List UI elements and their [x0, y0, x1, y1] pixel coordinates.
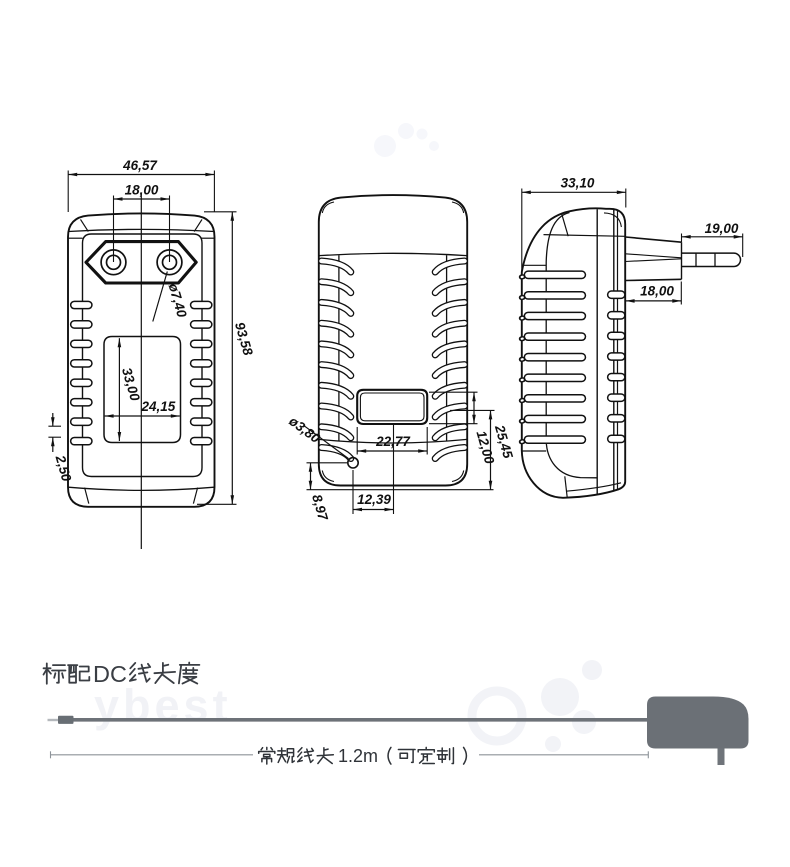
svg-text:18,00: 18,00 — [125, 183, 159, 198]
svg-text:24,15: 24,15 — [141, 399, 176, 414]
svg-text:12,00: 12,00 — [473, 429, 497, 466]
svg-text:1.2m: 1.2m — [338, 746, 378, 766]
svg-text:46,57: 46,57 — [122, 158, 158, 173]
svg-text:12,39: 12,39 — [357, 492, 391, 507]
svg-text:DC: DC — [93, 661, 127, 687]
svg-text:ø7,40: ø7,40 — [166, 282, 190, 320]
svg-text:33,10: 33,10 — [561, 175, 595, 190]
svg-text:18,00: 18,00 — [640, 283, 674, 298]
svg-text:2,50: 2,50 — [52, 453, 74, 484]
svg-text:19,00: 19,00 — [705, 221, 739, 236]
svg-text:8,97: 8,97 — [309, 493, 331, 524]
svg-text:33,00: 33,00 — [119, 366, 143, 403]
svg-text:ybest: ybest — [94, 680, 232, 731]
svg-text:93,58: 93,58 — [232, 320, 256, 357]
svg-text:ø3,80: ø3,80 — [286, 413, 323, 446]
